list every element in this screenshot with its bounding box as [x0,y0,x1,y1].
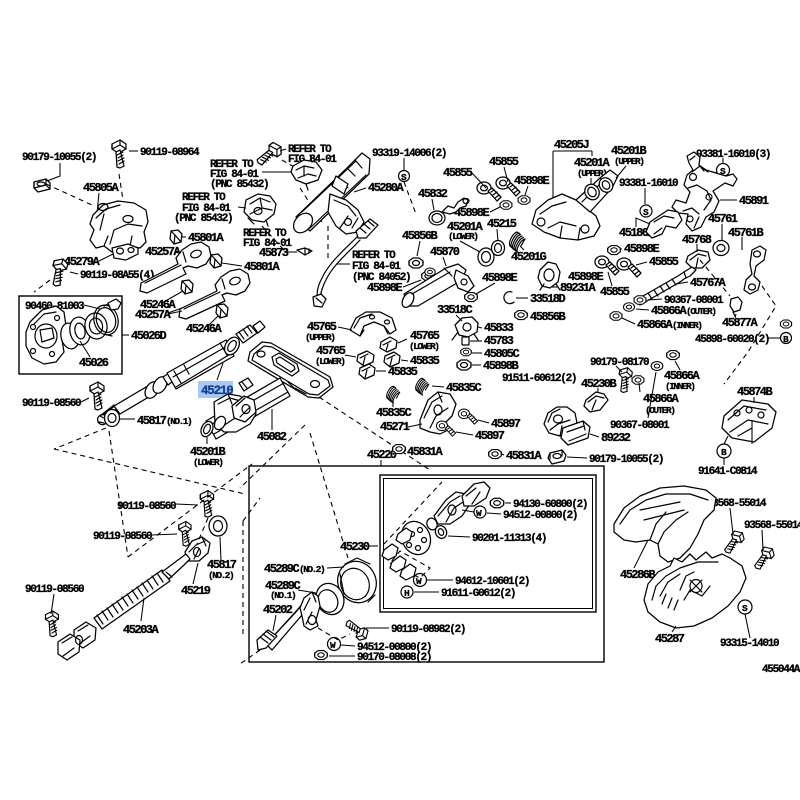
svg-text:(LOWER): (LOWER) [409,341,439,352]
svg-text:45898E: 45898E [367,281,403,295]
svg-text:45805A: 45805A [83,181,120,195]
svg-text:90201-11313(4): 90201-11313(4) [472,533,546,545]
svg-text:45203A: 45203A [123,623,160,637]
svg-text:(LOWER): (LOWER) [315,356,345,367]
svg-text:45856B: 45856B [402,229,438,243]
svg-text:45289C: 45289C [264,562,300,576]
svg-text:45831A: 45831A [407,445,444,459]
svg-text:(PNC 85432): (PNC 85432) [174,213,232,225]
svg-text:90119-08982(2): 90119-08982(2) [391,624,465,636]
svg-text:45855: 45855 [443,166,473,180]
svg-text:45866A: 45866A [651,304,688,318]
svg-text:45082: 45082 [257,430,287,444]
svg-text:45026: 45026 [79,356,109,370]
svg-text:91611-G0612(2): 91611-G0612(2) [441,588,515,600]
svg-text:45898E: 45898E [568,270,604,284]
svg-text:45205J: 45205J [554,138,589,152]
svg-text:45761: 45761 [708,212,738,226]
svg-text:45835C: 45835C [376,406,412,420]
svg-text:(UPPER): (UPPER) [614,156,644,167]
svg-text:45877A: 45877A [722,316,759,330]
svg-text:90119-08560: 90119-08560 [22,398,81,410]
svg-text:45287: 45287 [655,632,685,646]
svg-text:45832: 45832 [418,187,448,201]
svg-text:93568-55014: 93568-55014 [744,520,800,532]
svg-text:45279A: 45279A [64,255,101,269]
svg-text:45257A: 45257A [145,245,182,259]
svg-text:90119-08A55(4): 90119-08A55(4) [80,270,154,282]
svg-text:(NO.2): (NO.2) [208,570,234,581]
svg-text:45783: 45783 [484,334,514,348]
svg-text:(PNC 85432): (PNC 85432) [210,179,268,191]
svg-text:45835C: 45835C [446,381,482,395]
svg-text:90179-08170: 90179-08170 [590,357,649,369]
svg-text:(INNER): (INNER) [665,381,695,392]
svg-text:93315-14010: 93315-14010 [720,638,779,650]
svg-text:45026D: 45026D [131,329,167,343]
svg-text:90119-08560: 90119-08560 [117,501,176,513]
svg-text:(NO.2): (NO.2) [299,564,325,575]
svg-text:90119-08560: 90119-08560 [25,584,84,596]
svg-text:45873: 45873 [259,246,289,260]
svg-text:(LOWER): (LOWER) [193,457,223,468]
svg-text:45856B: 45856B [530,310,566,324]
svg-text:45201G: 45201G [511,250,547,264]
svg-text:90119-08964: 90119-08964 [140,147,200,159]
svg-text:45833: 45833 [484,321,514,335]
svg-text:45866A: 45866A [643,392,680,406]
svg-text:45246A: 45246A [186,322,223,336]
svg-text:45898E: 45898E [624,242,660,256]
svg-text:455044A: 455044A [762,664,800,676]
svg-text:45257A: 45257A [135,308,172,322]
svg-text:(NO.1): (NO.1) [166,416,192,427]
svg-text:93381-16010(3): 93381-16010(3) [696,149,770,161]
svg-text:45870: 45870 [430,245,460,259]
svg-text:(UPPER): (UPPER) [305,332,335,343]
svg-text:91511-60612(2): 91511-60612(2) [502,373,576,385]
svg-text:45898E: 45898E [514,174,550,188]
svg-text:93319-14006(2): 93319-14006(2) [372,148,446,160]
svg-text:93381-16010: 93381-16010 [619,178,678,190]
svg-text:45874B: 45874B [737,385,773,399]
svg-text:45831A: 45831A [506,449,543,463]
svg-text:45898E: 45898E [482,271,518,285]
svg-text:90367-08001: 90367-08001 [610,420,670,432]
svg-text:45817: 45817 [137,414,167,428]
svg-text:45801A: 45801A [244,260,281,274]
svg-text:33518C: 33518C [437,303,473,317]
svg-text:(INNER): (INNER) [672,320,702,331]
svg-text:45280A: 45280A [368,181,405,195]
svg-text:(LOWER): (LOWER) [448,231,478,242]
svg-text:94512-00800(2): 94512-00800(2) [503,510,577,522]
svg-text:90119-08560: 90119-08560 [93,531,152,543]
svg-text:45271: 45271 [380,420,410,434]
svg-text:45202: 45202 [263,603,293,617]
svg-text:33518D: 33518D [530,292,566,306]
svg-text:89232: 89232 [601,431,631,445]
svg-text:90179-10055(2): 90179-10055(2) [22,152,96,164]
svg-text:45866A: 45866A [637,318,674,332]
svg-text:45761B: 45761B [728,226,764,240]
svg-text:45855: 45855 [489,155,519,169]
svg-text:45286B: 45286B [620,568,656,582]
svg-text:45855: 45855 [600,285,630,299]
svg-text:45215: 45215 [487,217,517,231]
svg-text:45835: 45835 [388,365,418,379]
svg-text:45855: 45855 [649,255,679,269]
svg-text:45898B: 45898B [483,359,519,373]
svg-text:91641-C0814: 91641-C0814 [698,466,758,478]
svg-text:45897: 45897 [475,429,505,443]
svg-text:90179-10055(2): 90179-10055(2) [589,454,663,466]
svg-text:45891: 45891 [739,194,769,208]
svg-text:45898-60020(2): 45898-60020(2) [695,334,769,346]
svg-text:45767A: 45767A [690,276,727,290]
svg-text:(OUTER): (OUTER) [686,306,716,317]
svg-text:45219: 45219 [181,584,211,598]
svg-text:45230B: 45230B [581,377,617,391]
svg-text:(NO.1): (NO.1) [270,590,296,601]
svg-text:94612-10601(2): 94612-10601(2) [455,576,529,588]
